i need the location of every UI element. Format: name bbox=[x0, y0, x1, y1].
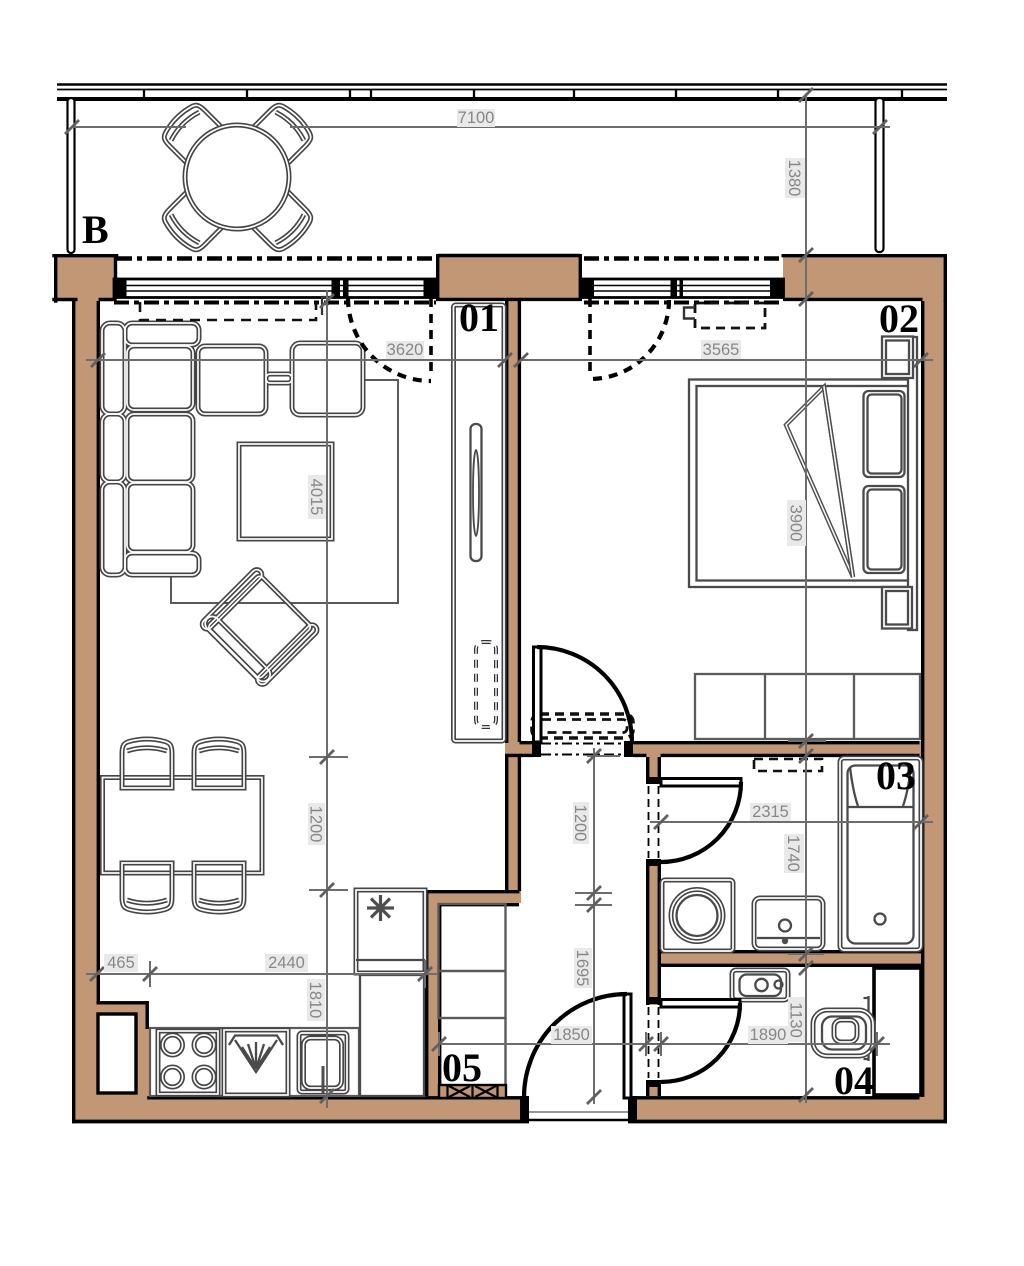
svg-text:2315: 2315 bbox=[752, 803, 789, 821]
svg-text:1200: 1200 bbox=[307, 806, 325, 843]
svg-text:1810: 1810 bbox=[306, 982, 324, 1019]
svg-text:04: 04 bbox=[834, 1058, 874, 1103]
svg-text:4015: 4015 bbox=[307, 479, 325, 516]
svg-text:3620: 3620 bbox=[387, 341, 424, 359]
svg-text:1130: 1130 bbox=[787, 1002, 805, 1037]
svg-text:1695: 1695 bbox=[573, 950, 591, 987]
svg-text:03: 03 bbox=[876, 753, 916, 798]
svg-text:1380: 1380 bbox=[785, 160, 803, 197]
svg-text:7100: 7100 bbox=[458, 109, 495, 127]
svg-text:1740: 1740 bbox=[784, 835, 802, 872]
svg-text:2440: 2440 bbox=[268, 954, 305, 972]
svg-text:01: 01 bbox=[459, 295, 499, 340]
svg-text:B: B bbox=[82, 207, 109, 252]
svg-text:465: 465 bbox=[107, 954, 135, 972]
svg-text:02: 02 bbox=[879, 296, 919, 341]
svg-text:1850: 1850 bbox=[553, 1026, 590, 1044]
svg-text:05: 05 bbox=[442, 1045, 482, 1090]
svg-text:1200: 1200 bbox=[571, 805, 589, 842]
svg-text:3565: 3565 bbox=[703, 341, 740, 359]
svg-text:3900: 3900 bbox=[787, 505, 805, 542]
svg-text:1890: 1890 bbox=[750, 1026, 787, 1044]
